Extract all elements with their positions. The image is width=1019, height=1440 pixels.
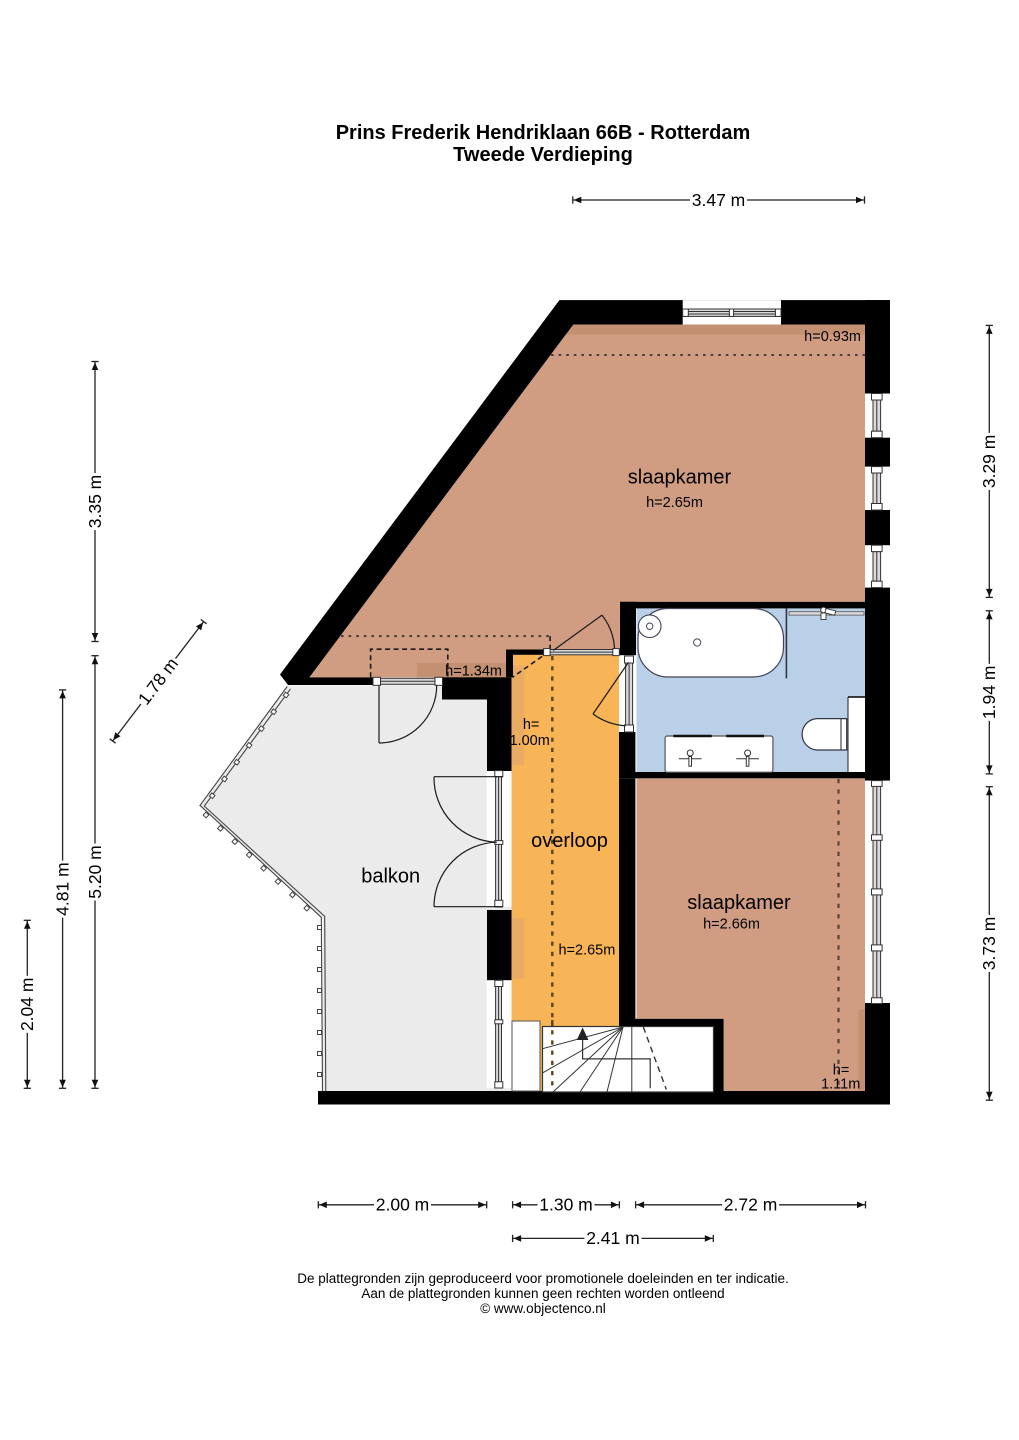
svg-text:h=0.93m: h=0.93m — [804, 329, 861, 345]
svg-text:De plattegronden zijn geproduc: De plattegronden zijn geproduceerd voor … — [297, 1271, 789, 1286]
svg-text:1.94 m: 1.94 m — [979, 666, 999, 720]
svg-text:1.00m: 1.00m — [509, 733, 549, 749]
svg-text:© www.objectenco.nl: © www.objectenco.nl — [480, 1301, 606, 1316]
svg-text:Aan de plattegronden kunnen ge: Aan de plattegronden kunnen geen rechten… — [361, 1286, 724, 1301]
svg-text:h=2.66m: h=2.66m — [703, 917, 760, 933]
svg-text:3.29 m: 3.29 m — [979, 435, 999, 489]
svg-text:slaapkamer: slaapkamer — [628, 467, 732, 489]
svg-text:2.72 m: 2.72 m — [724, 1195, 778, 1215]
svg-text:Prins Frederik Hendriklaan 66B: Prins Frederik Hendriklaan 66B - Rotterd… — [336, 122, 751, 144]
svg-text:1.11m: 1.11m — [821, 1077, 860, 1093]
svg-text:balkon: balkon — [361, 866, 420, 888]
svg-text:overloop: overloop — [531, 830, 608, 852]
svg-text:5.20 m: 5.20 m — [85, 845, 105, 899]
svg-text:h=1.34m: h=1.34m — [445, 664, 502, 680]
svg-text:slaapkamer: slaapkamer — [687, 892, 791, 914]
svg-text:h=2.65m: h=2.65m — [558, 943, 615, 959]
svg-text:h=2.65m: h=2.65m — [646, 495, 703, 511]
svg-text:3.35 m: 3.35 m — [85, 475, 105, 529]
svg-text:3.47 m: 3.47 m — [692, 190, 746, 210]
svg-text:3.73 m: 3.73 m — [979, 917, 999, 971]
svg-text:2.04 m: 2.04 m — [17, 978, 37, 1032]
svg-text:2.00 m: 2.00 m — [376, 1195, 430, 1215]
svg-text:2.41 m: 2.41 m — [586, 1228, 640, 1248]
svg-text:1.30 m: 1.30 m — [539, 1195, 593, 1215]
svg-text:4.81 m: 4.81 m — [52, 862, 72, 916]
svg-text:Tweede Verdieping: Tweede Verdieping — [453, 144, 633, 166]
svg-text:h=: h= — [523, 717, 540, 733]
